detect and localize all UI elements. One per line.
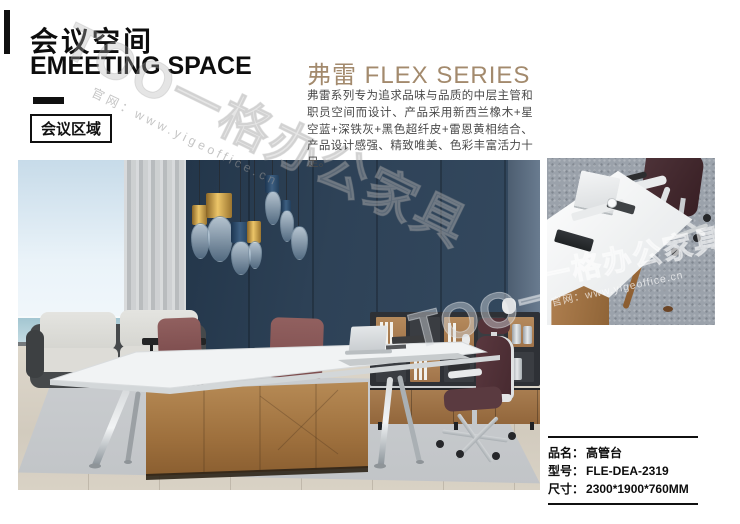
pendant-cord	[199, 160, 200, 206]
product-size-row: 尺寸：2300*1900*760MM	[548, 480, 698, 498]
table-leg-chrome	[128, 394, 138, 460]
product-model-row: 型号：FLE-DEA-2319	[548, 462, 698, 480]
product-size-label: 尺寸：	[548, 482, 584, 496]
pendant-cord	[298, 160, 299, 226]
series-description: 弗雷系列专为追求品味与品质的中层主管和职员空间而设计、产品采用新西兰橡木+星空蓝…	[307, 88, 533, 172]
desk-cable-hole	[607, 198, 617, 208]
pendant-cord	[254, 160, 255, 222]
product-name-row: 品名：高管台	[548, 444, 698, 462]
pendant-cord	[240, 160, 241, 223]
table-leg-chrome	[96, 392, 126, 464]
product-model-value: FLE-DEA-2319	[586, 464, 669, 478]
detail-chair-caster	[703, 214, 711, 222]
page-title-en: EMEETING SPACE	[30, 52, 252, 81]
pendant-cord	[286, 160, 287, 200]
chair-caster	[508, 432, 516, 440]
product-size-value: 2300*1900*760MM	[586, 482, 689, 496]
pendant-cap-gold	[206, 193, 232, 218]
product-name-value: 高管台	[586, 446, 622, 460]
desk-wood-foot	[663, 306, 673, 312]
table-pedestal	[146, 382, 368, 476]
bookshelf-leg	[530, 422, 534, 430]
shelf-top-vase	[502, 298, 516, 314]
title-dash	[33, 97, 64, 104]
pendant-cap-gold	[192, 205, 207, 225]
main-photo: TOO一格办公家具	[18, 160, 540, 490]
zone-badge: 会议区域	[30, 114, 112, 143]
product-info-box: 品名：高管台 型号：FLE-DEA-2319 尺寸：2300*1900*760M…	[548, 436, 698, 505]
catalog-page: TOO一格办公家具 官网：www.yigeoffice.cn 会议空间 EMEE…	[0, 0, 740, 524]
table-leg-chrome	[381, 380, 390, 464]
detail-chair-caster	[693, 234, 701, 242]
pendant-cord	[272, 160, 273, 176]
detail-photo: 一格办公家具 官网：www.yigeoffice.cn	[547, 158, 715, 325]
pendant-cap-gold	[247, 221, 261, 243]
table-leg-chrome	[400, 378, 419, 460]
product-name-label: 品名：	[548, 446, 584, 460]
left-accent-bar	[4, 10, 10, 54]
product-model-label: 型号：	[548, 464, 584, 478]
series-title: 弗雷 FLEX SERIES	[307, 55, 530, 90]
canister	[523, 326, 532, 344]
detail-chair-caster	[671, 248, 679, 256]
pendant-cord	[219, 160, 220, 194]
conference-table	[38, 338, 508, 490]
